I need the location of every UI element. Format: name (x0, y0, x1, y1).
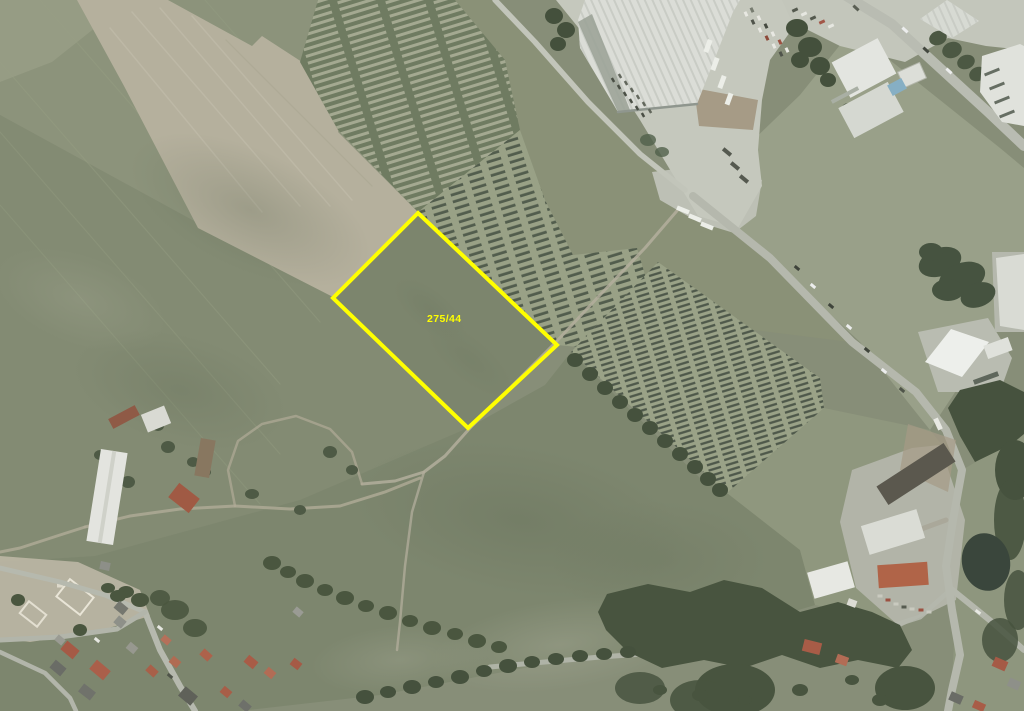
tree-clusters-37 (792, 684, 808, 696)
tree-rows-21 (468, 634, 486, 648)
buildings-rrect-13 (877, 562, 928, 588)
tree-clusters-21 (346, 465, 358, 475)
tree-clusters-29 (131, 593, 149, 607)
tree-rows-6 (657, 434, 673, 448)
tree-rows-13 (296, 574, 314, 588)
tree-rows-4 (627, 408, 643, 422)
tree-clusters-39 (872, 694, 888, 706)
tree-clusters-18 (245, 489, 259, 499)
tree-clusters-6 (791, 52, 809, 68)
forest-blobs-11 (932, 279, 964, 301)
tree-rows-14 (317, 584, 333, 596)
tree-rows-20 (447, 628, 463, 640)
vehicles-53 (894, 603, 899, 606)
tree-clusters-26 (11, 594, 25, 606)
tree-rows-26 (428, 676, 444, 688)
tree-rows-29 (499, 659, 517, 673)
buildings-topright-3 (996, 254, 1024, 330)
tree-rows-17 (379, 606, 397, 620)
tree-clusters-23 (161, 441, 175, 453)
tree-clusters-3 (786, 19, 808, 37)
tree-clusters-5 (810, 57, 830, 75)
map-layers (0, 0, 1024, 711)
tree-clusters-35 (692, 689, 708, 701)
tree-clusters-36 (738, 695, 752, 705)
tree-rows-12 (280, 566, 296, 578)
vehicles-51 (878, 595, 883, 598)
tree-rows-7 (672, 447, 688, 461)
tree-rows-2 (597, 381, 613, 395)
tree-rows-3 (612, 395, 628, 409)
tree-clusters-33 (150, 590, 170, 606)
tree-rows-8 (687, 460, 703, 474)
tree-clusters-40 (640, 134, 656, 146)
tree-rows-15 (336, 591, 354, 605)
tree-rows-0 (567, 353, 583, 367)
tree-clusters-0 (545, 8, 563, 24)
tree-rows-25 (403, 680, 421, 694)
tree-clusters-32 (183, 619, 207, 637)
tree-rows-22 (491, 641, 507, 653)
forest-blobs-12 (919, 243, 943, 261)
tree-rows-23 (356, 690, 374, 704)
tree-clusters-2 (550, 37, 566, 51)
tree-rows-27 (451, 670, 469, 684)
tree-clusters-25 (73, 624, 87, 636)
tree-rows-28 (476, 665, 492, 677)
tree-rows-1 (582, 367, 598, 381)
forest-blobs-7 (982, 618, 1018, 662)
tree-clusters-20 (323, 446, 337, 458)
tree-rows-18 (402, 615, 418, 627)
vehicles-54 (902, 606, 907, 609)
vehicles-56 (919, 609, 924, 612)
tree-rows-34 (620, 646, 636, 658)
tree-rows-31 (548, 653, 564, 665)
tree-rows-9 (700, 472, 716, 486)
vehicles-52 (886, 599, 891, 602)
tree-rows-19 (423, 621, 441, 635)
tree-clusters-7 (820, 73, 836, 87)
tree-clusters-30 (110, 590, 126, 602)
aerial-map-viewport: 275/44 (0, 0, 1024, 711)
tree-rows-10 (712, 483, 728, 497)
tree-rows-32 (572, 650, 588, 662)
tree-rows-30 (524, 656, 540, 668)
tree-clusters-41 (655, 147, 669, 157)
tree-clusters-19 (294, 505, 306, 515)
vehicles-57 (927, 611, 932, 614)
vehicles-55 (910, 608, 915, 611)
tree-clusters-38 (845, 675, 859, 685)
tree-clusters-1 (557, 22, 575, 38)
parcel-label: 275/44 (427, 313, 462, 325)
tree-rows-11 (263, 556, 281, 570)
tree-clusters-34 (653, 685, 667, 695)
aerial-photo-map: 275/44 (0, 0, 1024, 711)
tree-rows-5 (642, 421, 658, 435)
tree-rows-33 (596, 648, 612, 660)
tree-rows-24 (380, 686, 396, 698)
tree-rows-16 (358, 600, 374, 612)
